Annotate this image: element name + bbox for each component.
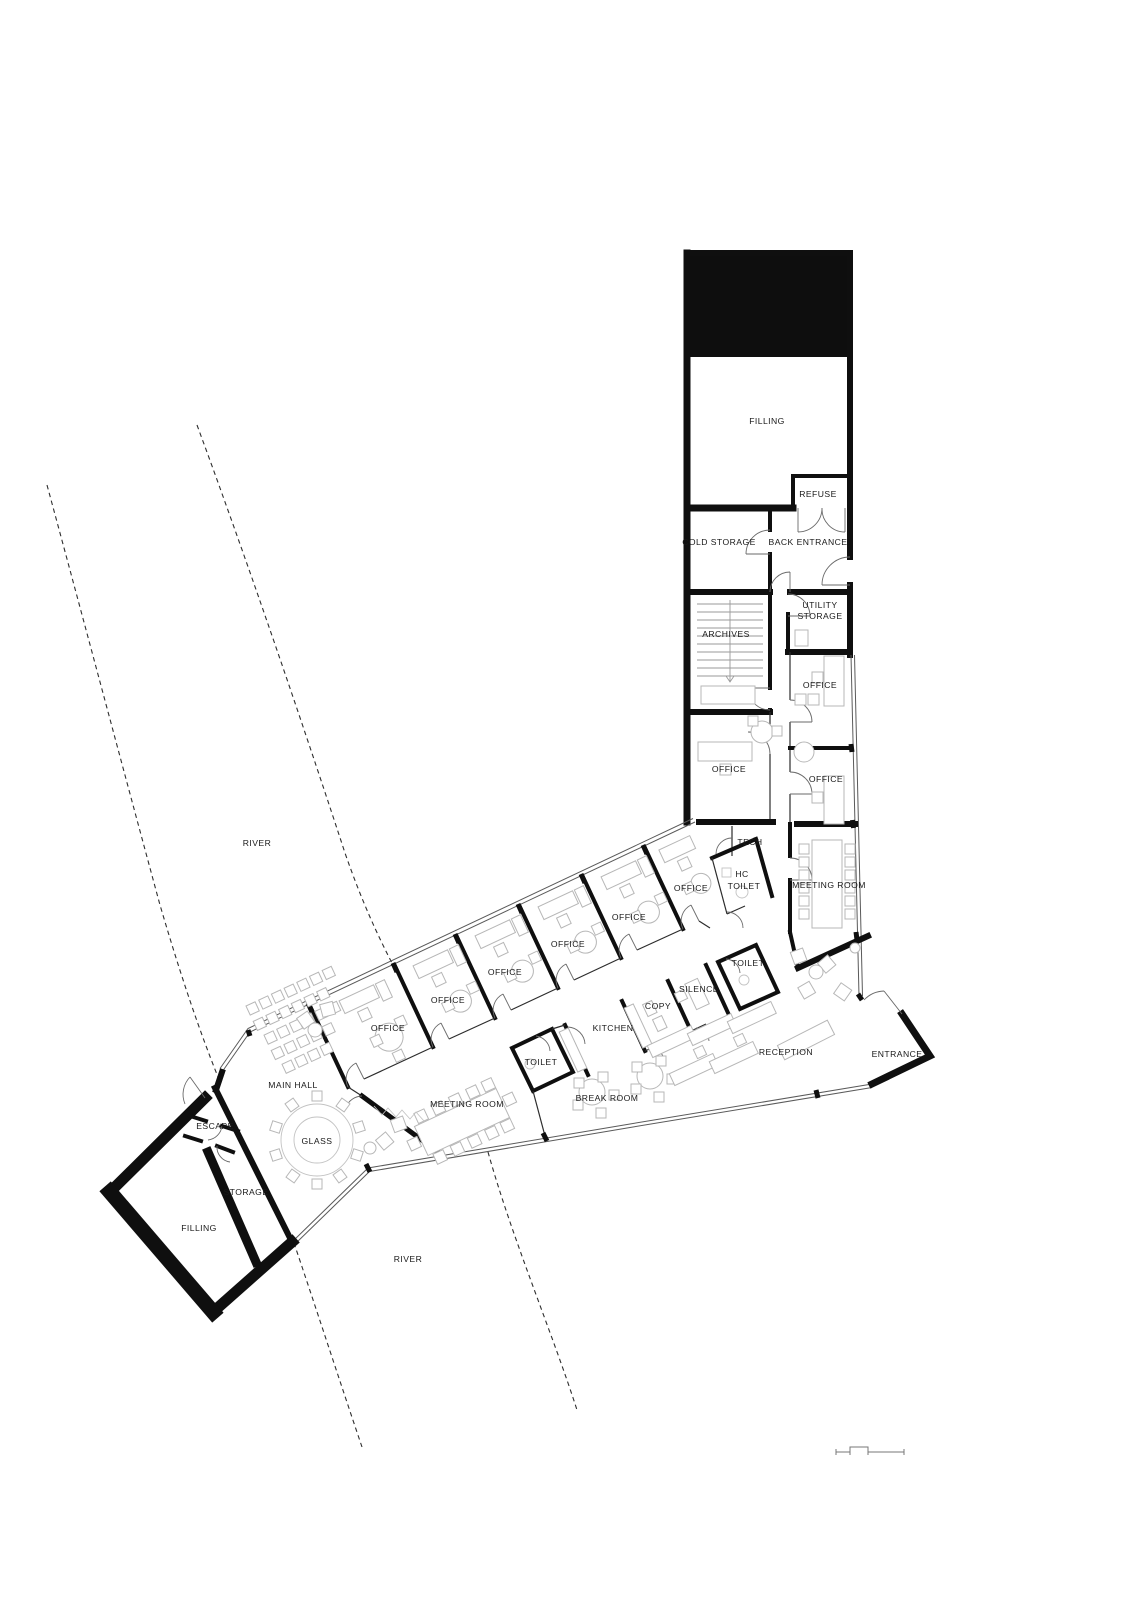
reception-desks bbox=[647, 1002, 834, 1086]
label-archives: ARCHIVES bbox=[702, 629, 750, 639]
label-kitchen: KITCHEN bbox=[593, 1023, 634, 1033]
label-office-d5: OFFICE bbox=[612, 912, 646, 922]
label-office-d3: OFFICE bbox=[488, 967, 522, 977]
office-kit-5 bbox=[601, 856, 673, 934]
meeting-table-south bbox=[398, 1072, 527, 1172]
label-hc-toilet: HCTOILET bbox=[728, 869, 761, 891]
solid-roof-area bbox=[687, 253, 850, 357]
label-meeting-room-south: MEETING ROOM bbox=[430, 1099, 504, 1109]
label-silence: SILENCE bbox=[679, 984, 719, 994]
label-refuse: REFUSE bbox=[799, 489, 837, 499]
copier-2 bbox=[653, 1016, 668, 1032]
label-office-d4: OFFICE bbox=[551, 939, 585, 949]
label-glass: GLASS bbox=[302, 1136, 333, 1146]
label-escape: ESCAPE bbox=[196, 1121, 234, 1131]
label-office-d2: OFFICE bbox=[431, 995, 465, 1005]
label-main-hall: MAIN HALL bbox=[268, 1080, 317, 1090]
office-kit-4 bbox=[538, 886, 610, 964]
label-tech: TECH bbox=[737, 837, 762, 847]
label-office-d1: OFFICE bbox=[371, 1023, 405, 1033]
label-reception: RECEPTION bbox=[759, 1047, 813, 1057]
scale-bar bbox=[836, 1447, 904, 1455]
label-river-bottom: RIVER bbox=[394, 1254, 423, 1264]
label-back-entrance: BACK ENTRANCE bbox=[769, 537, 848, 547]
label-river-top: RIVER bbox=[243, 838, 272, 848]
label-office-c: OFFICE bbox=[809, 774, 843, 784]
label-break-room: BREAK ROOM bbox=[576, 1093, 639, 1103]
label-meeting-room-north: MEETING ROOM bbox=[792, 880, 866, 890]
label-copy: COPY bbox=[645, 1001, 671, 1011]
office-kit-3 bbox=[475, 915, 547, 993]
label-office-a: OFFICE bbox=[803, 680, 837, 690]
lounge-chairs bbox=[790, 943, 860, 1001]
label-office-d6: OFFICE bbox=[674, 883, 708, 893]
label-cold-storage: COLD STORAGE bbox=[682, 537, 756, 547]
label-utility-storage: UTILITYSTORAGE bbox=[797, 600, 842, 621]
label-entrance: ENTRANCE bbox=[872, 1049, 923, 1059]
break-room-tables bbox=[573, 1056, 677, 1118]
label-office-b: OFFICE bbox=[712, 764, 746, 774]
label-filling-north: FILLING bbox=[749, 416, 785, 426]
label-storage: STORAGE bbox=[223, 1187, 268, 1197]
stairs bbox=[697, 600, 763, 704]
office-kit-2 bbox=[413, 945, 485, 1023]
label-toilet-north: TOILET bbox=[732, 958, 765, 968]
floor-plan-drawing: FILLING REFUSE COLD STORAGE BACK ENTRANC… bbox=[0, 0, 1130, 1600]
floor-plan-page: FILLING REFUSE COLD STORAGE BACK ENTRANC… bbox=[0, 0, 1130, 1600]
label-toilet-mid: TOILET bbox=[525, 1057, 558, 1067]
label-filling-south: FILLING bbox=[181, 1223, 217, 1233]
